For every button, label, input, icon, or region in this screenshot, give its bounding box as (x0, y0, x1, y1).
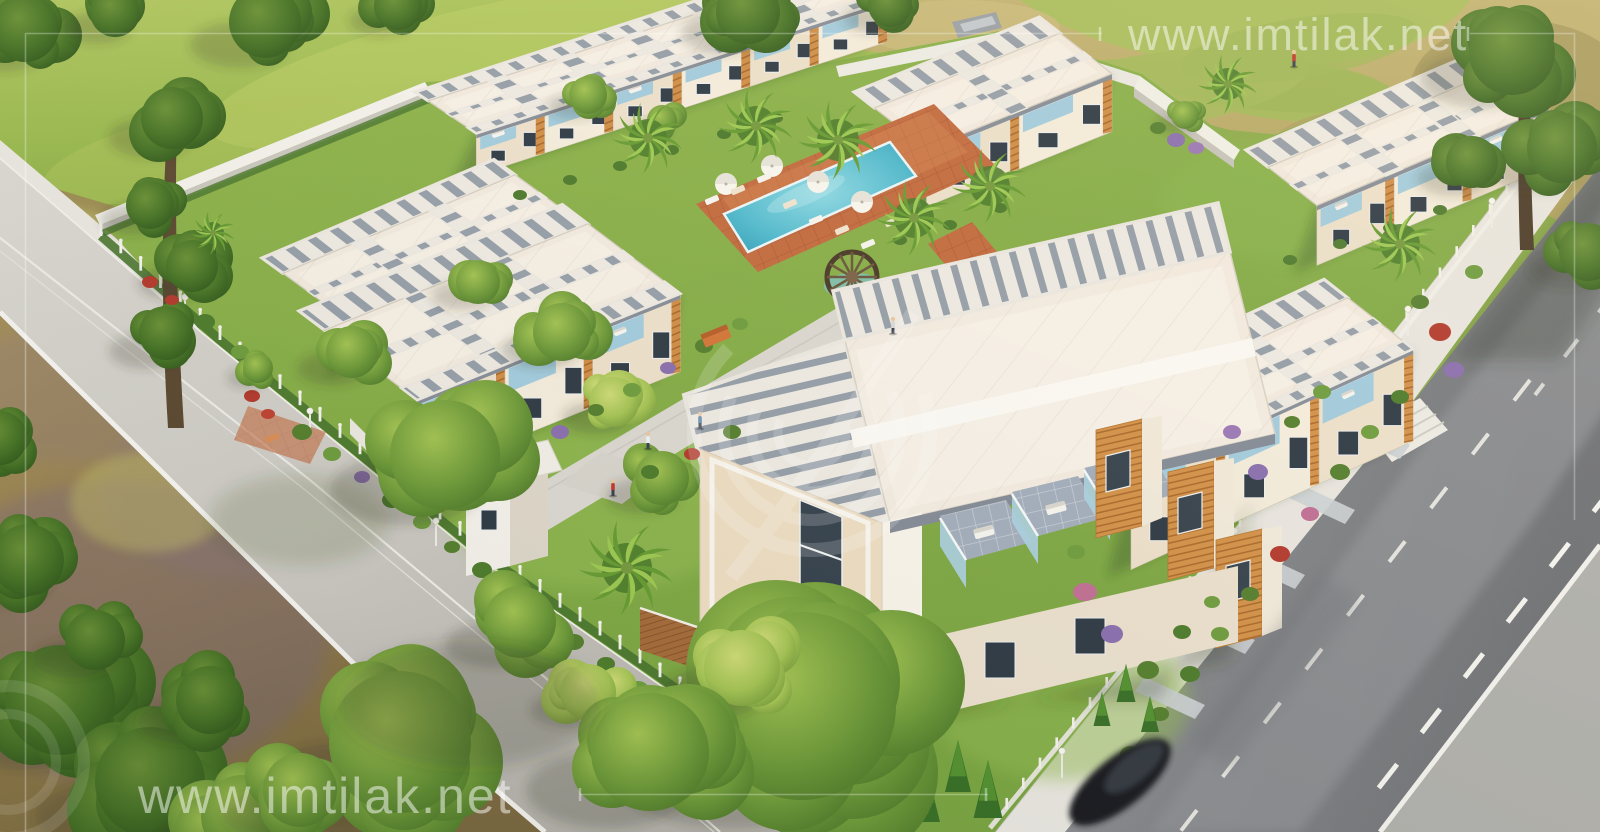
svg-text:www.imtilak.net: www.imtilak.net (137, 768, 513, 824)
svg-text:www.imtilak.net: www.imtilak.net (1127, 9, 1468, 60)
